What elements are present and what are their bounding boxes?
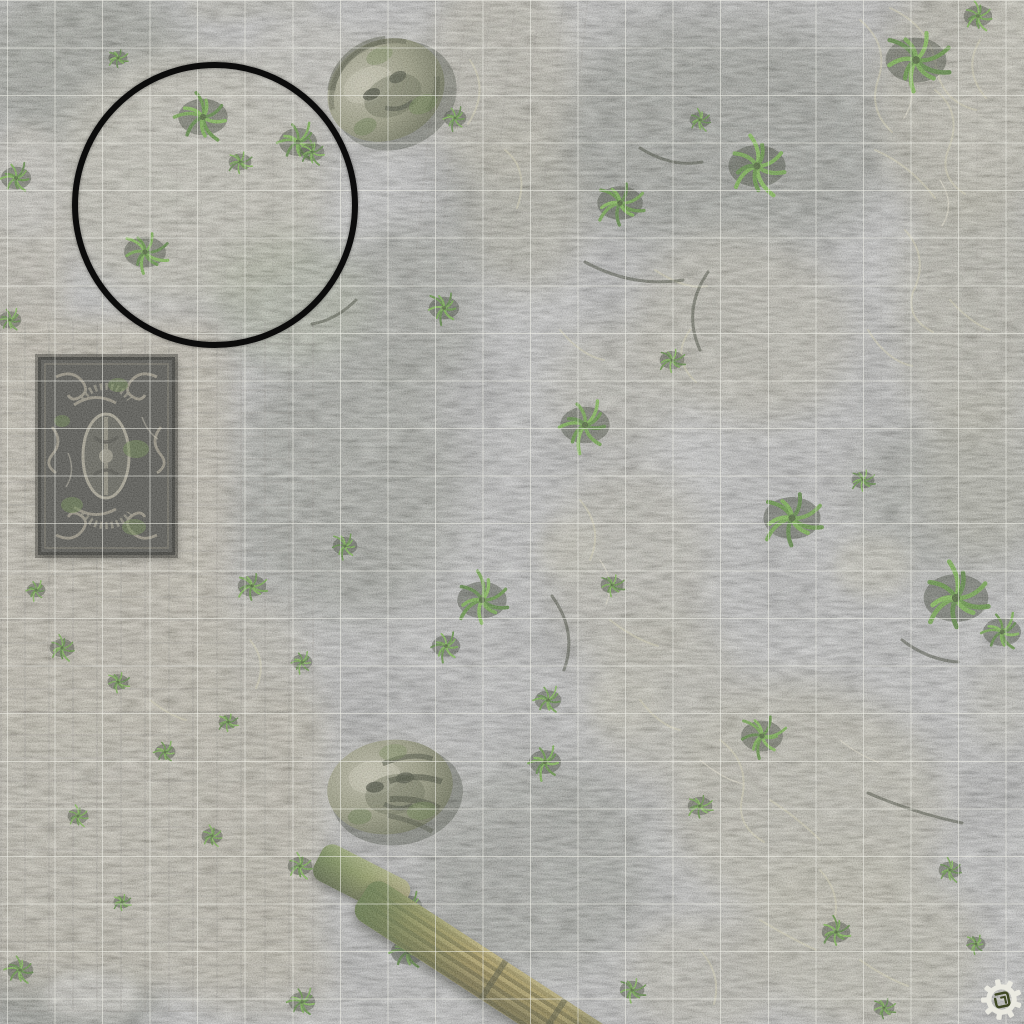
deployment-zone-circle [72, 62, 358, 348]
jungle-battle-mat [0, 0, 1024, 1024]
gear-emblem-logo [979, 977, 1024, 1022]
gear-teeth [979, 977, 1024, 1022]
logo-glyph [994, 992, 1010, 1008]
